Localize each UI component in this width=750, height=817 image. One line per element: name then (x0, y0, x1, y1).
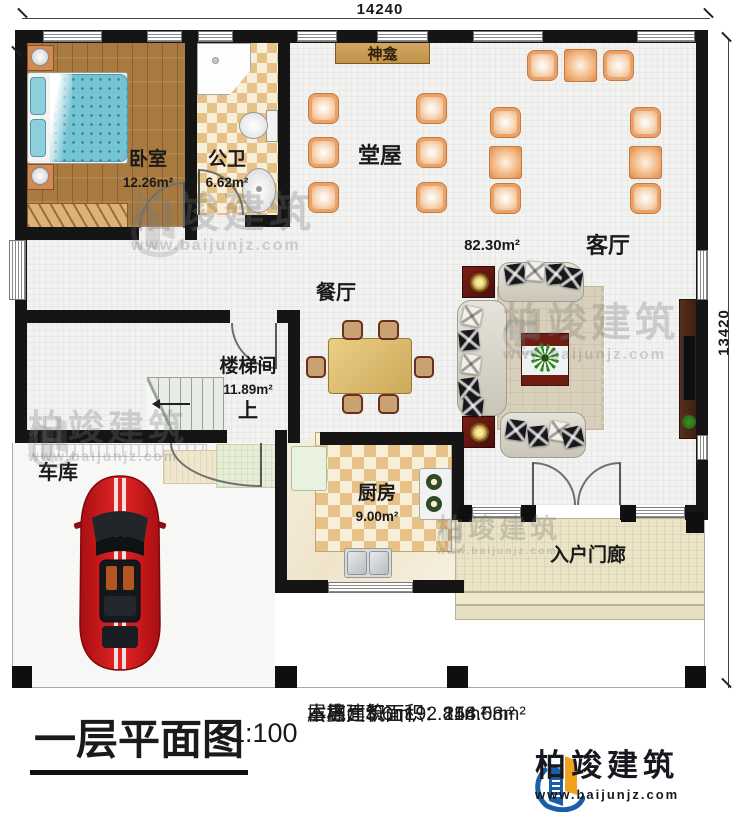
window (377, 31, 428, 42)
porch-step (455, 605, 705, 620)
sofa-pillow (460, 304, 484, 328)
sofa-pillow (524, 260, 546, 282)
hall-armchair (416, 182, 447, 213)
hall-armchair (416, 93, 447, 124)
window (697, 250, 708, 300)
shower-drain (212, 57, 219, 64)
living-area: 82.30m² (464, 237, 520, 254)
lamp (31, 48, 49, 66)
porch-label: 入户门廊 (550, 545, 626, 567)
wall (15, 310, 230, 323)
sofa-pillow (462, 395, 484, 417)
pillar (12, 666, 32, 688)
shrine-cabinet: 神龛 (335, 42, 430, 64)
wall (288, 323, 300, 443)
bathroom-name: 公卫 (208, 149, 246, 170)
pillar (275, 666, 297, 688)
stairs-winder (147, 377, 173, 433)
window (43, 31, 102, 42)
kitchen-area: 9.00m² (356, 509, 399, 524)
top-dimension-line (22, 18, 710, 19)
shrine-label: 神龛 (367, 43, 397, 64)
bathroom-area: 6.62m² (206, 175, 249, 190)
dimension-tick (703, 8, 714, 19)
burner (426, 474, 442, 490)
dimension-tick (721, 678, 732, 689)
hall-armchair (630, 107, 661, 138)
bedroom-label: 卧室 12.26m² (123, 149, 173, 193)
bed-pillow (30, 119, 46, 157)
stairwell-name: 楼梯间 (219, 356, 276, 377)
top-dimension-label: 14240 (340, 1, 420, 18)
wall (15, 430, 227, 443)
logo-name: 柏竣建筑 (535, 750, 679, 781)
sofa-pillow (504, 263, 527, 286)
floor-plan-page: 14240 13420 (0, 0, 750, 817)
toilet-bowl (239, 112, 268, 139)
hall-armchair (308, 137, 339, 168)
kitchen-name: 厨房 (358, 483, 396, 504)
garage-label: 车库 (38, 462, 78, 485)
hall-side-table (629, 146, 662, 179)
hall-label: 堂屋 (358, 143, 402, 168)
sports-car (74, 474, 166, 672)
tv (682, 336, 695, 400)
wall (413, 580, 464, 593)
window (9, 240, 26, 300)
wall (245, 215, 290, 227)
hall-side-table (489, 146, 522, 179)
window (297, 31, 337, 42)
living-label: 客厅 (586, 233, 630, 258)
wall (275, 430, 287, 593)
bedroom-area: 12.26m² (123, 175, 173, 190)
pillar (447, 666, 468, 688)
window (473, 31, 543, 42)
sofa-pillow (527, 425, 549, 447)
hall-armchair (603, 50, 634, 81)
entrance-door-leaf (532, 462, 534, 505)
entrance-door-leaf (619, 462, 621, 505)
window (328, 582, 413, 593)
hall-armchair (490, 107, 521, 138)
hall-armchair (630, 183, 661, 214)
fridge (291, 446, 327, 491)
stairwell-area: 11.89m² (223, 382, 273, 397)
dimension-tick (721, 32, 732, 43)
bed-sheet-fold (50, 74, 72, 162)
dining-chair (378, 394, 399, 414)
window (198, 31, 233, 42)
sofa-pillow (460, 353, 483, 376)
wall (277, 310, 300, 323)
sofa-pillow (458, 329, 480, 351)
outline-line (12, 687, 706, 688)
window (147, 31, 182, 42)
bedroom-door-leaf (183, 182, 185, 228)
window (637, 31, 695, 42)
hall-armchair (308, 182, 339, 213)
stairs-direction-arrow (160, 403, 190, 405)
pillar (686, 512, 704, 533)
sink-basin (369, 551, 389, 575)
info-value: 192.81m² (405, 703, 487, 725)
dining-label: 餐厅 (316, 282, 356, 305)
stairwell-label: 楼梯间 11.89m² 上 (219, 356, 276, 423)
hall-armchair (416, 137, 447, 168)
stairwell-direction: 上 (238, 400, 258, 422)
logo-text: 柏竣建筑 www.baijunjz.com (535, 750, 679, 802)
wall (15, 227, 139, 240)
sofa-pillow (505, 419, 528, 442)
pillar (521, 505, 536, 522)
wall (275, 580, 328, 593)
wardrobe (27, 203, 128, 228)
end-table (462, 416, 495, 448)
hall-side-table (564, 49, 597, 82)
pillar (621, 505, 636, 522)
info-value: 3.6m (366, 703, 409, 725)
sofa-pillow (561, 425, 585, 449)
wall (320, 432, 452, 445)
lamp (31, 167, 49, 185)
sink-basin (347, 551, 367, 575)
window (472, 507, 521, 518)
dining-table (328, 338, 412, 394)
window (697, 435, 708, 460)
sofa-pillow (560, 266, 583, 289)
hall-armchair (527, 50, 558, 81)
info-row: 层高：3.6m (307, 701, 409, 729)
page-title: 一层平面图 (30, 706, 248, 775)
logo-url: www.baijunjz.com (535, 787, 679, 802)
bedroom-name: 卧室 (129, 149, 167, 170)
sink-drain (256, 186, 262, 192)
kitchen-label: 厨房 9.00m² (356, 483, 399, 527)
dining-chair (378, 320, 399, 340)
plant (531, 344, 559, 372)
bathroom-label: 公卫 6.62m² (206, 149, 249, 193)
garage-door-leaf (260, 443, 262, 487)
dimension-tick (17, 8, 28, 19)
dining-chair (414, 356, 434, 378)
hall-armchair (490, 183, 521, 214)
dining-chair (306, 356, 326, 378)
right-dimension-label: 13420 (716, 301, 733, 365)
window (635, 507, 685, 518)
end-table (462, 266, 495, 298)
outline-line (12, 443, 13, 688)
pillar (458, 505, 472, 522)
bathroom-door-leaf (198, 169, 200, 215)
plant (682, 415, 696, 429)
info-label: 层高： (307, 703, 366, 725)
drawing-scale: 1:100 (230, 718, 298, 749)
porch-step (455, 592, 705, 605)
bed-pillow (30, 77, 46, 115)
pillar (685, 666, 706, 688)
wall (15, 30, 700, 43)
hall-armchair (308, 93, 339, 124)
wall (185, 215, 198, 227)
company-logo: 柏竣建筑 www.baijunjz.com (535, 750, 585, 812)
burner (426, 496, 442, 512)
wall (278, 30, 290, 227)
dining-chair (342, 394, 363, 414)
wall (185, 30, 197, 240)
dining-chair (342, 320, 363, 340)
